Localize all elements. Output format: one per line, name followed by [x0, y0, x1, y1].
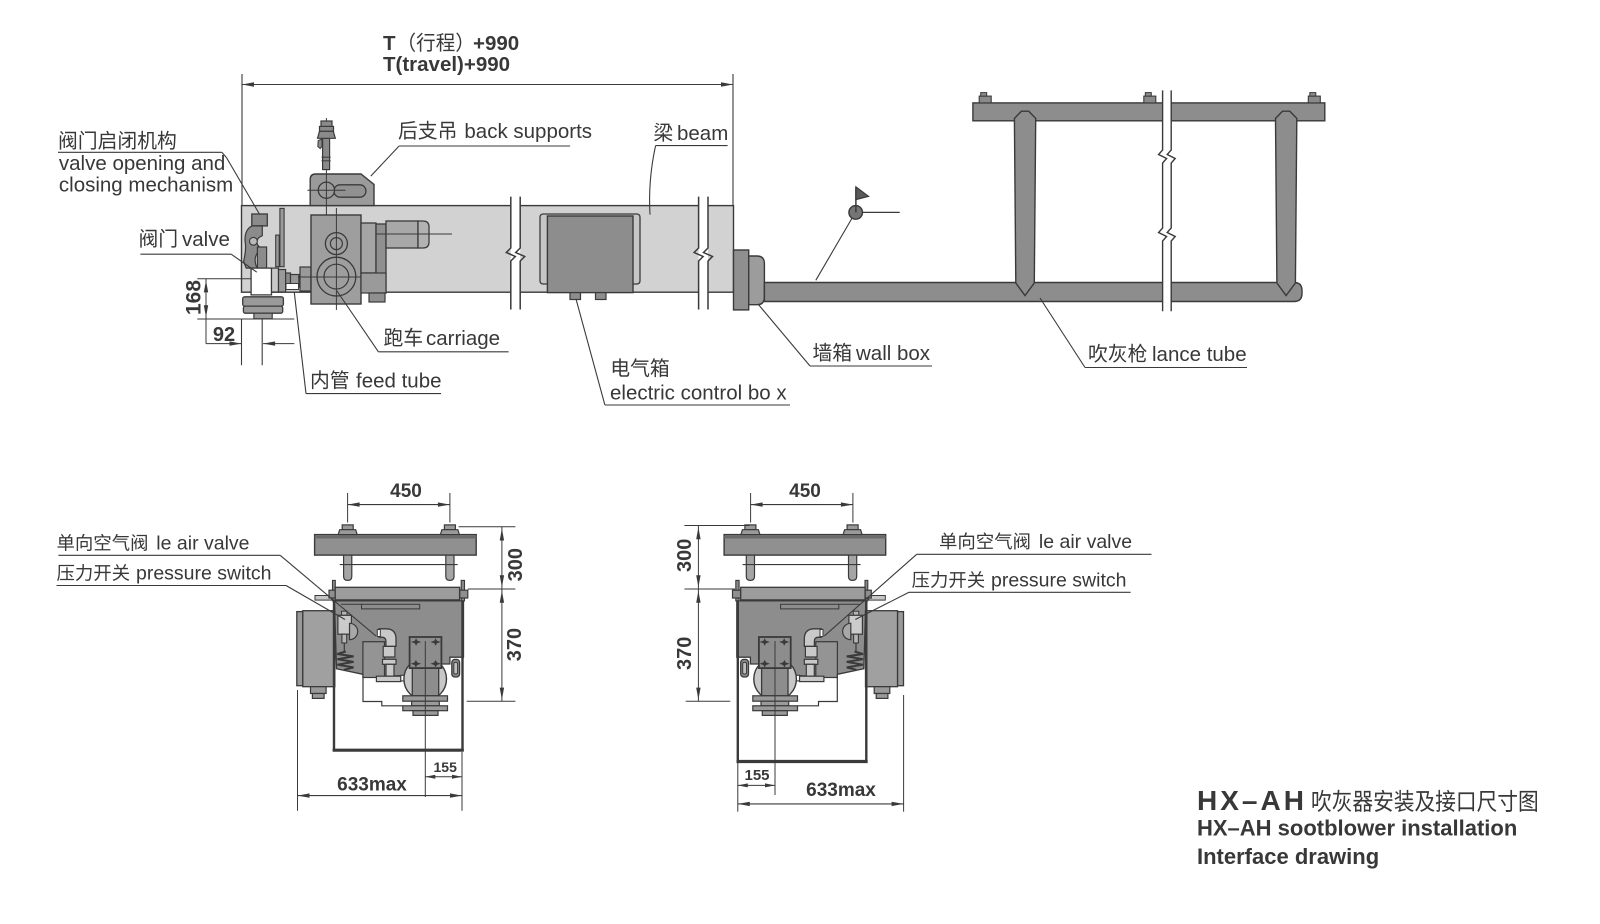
svg-text:633max: 633max: [806, 780, 876, 801]
svg-text:pressure switch: pressure switch: [136, 563, 271, 585]
svg-text:feed tube: feed tube: [356, 370, 442, 393]
svg-text:wall box: wall box: [855, 342, 931, 365]
svg-text:back supports: back supports: [464, 120, 592, 143]
svg-text:370: 370: [674, 637, 696, 670]
svg-text:155: 155: [744, 767, 769, 784]
svg-text:Interface drawing: Interface drawing: [1197, 844, 1379, 869]
svg-text:155: 155: [434, 759, 458, 775]
svg-text:370: 370: [504, 628, 526, 661]
svg-text:valve opening and: valve opening and: [59, 152, 225, 175]
svg-text:450: 450: [789, 481, 821, 502]
svg-text:633max: 633max: [337, 775, 407, 796]
svg-text:electric control bo x: electric control bo x: [610, 382, 787, 405]
svg-text:closing mechanism: closing mechanism: [59, 174, 233, 197]
svg-text:T(travel)+990: T(travel)+990: [383, 53, 510, 76]
svg-text:lance tube: lance tube: [1152, 343, 1247, 366]
svg-text:valve: valve: [182, 228, 230, 251]
svg-text:le air valve: le air valve: [156, 533, 249, 555]
svg-text:HX–AH sootblower installation: HX–AH sootblower installation: [1197, 816, 1517, 841]
svg-text:carriage: carriage: [426, 327, 500, 350]
svg-text:beam: beam: [677, 122, 728, 145]
svg-text:450: 450: [390, 481, 422, 502]
svg-text:T: T: [383, 32, 396, 55]
svg-text:le air valve: le air valve: [1039, 531, 1132, 553]
svg-text:+990: +990: [473, 32, 519, 55]
svg-text:300: 300: [674, 539, 696, 572]
svg-text:300: 300: [505, 548, 527, 581]
svg-text:168: 168: [183, 280, 206, 315]
svg-text:HX–AH: HX–AH: [1197, 785, 1307, 816]
svg-text:pressure switch: pressure switch: [991, 570, 1126, 592]
